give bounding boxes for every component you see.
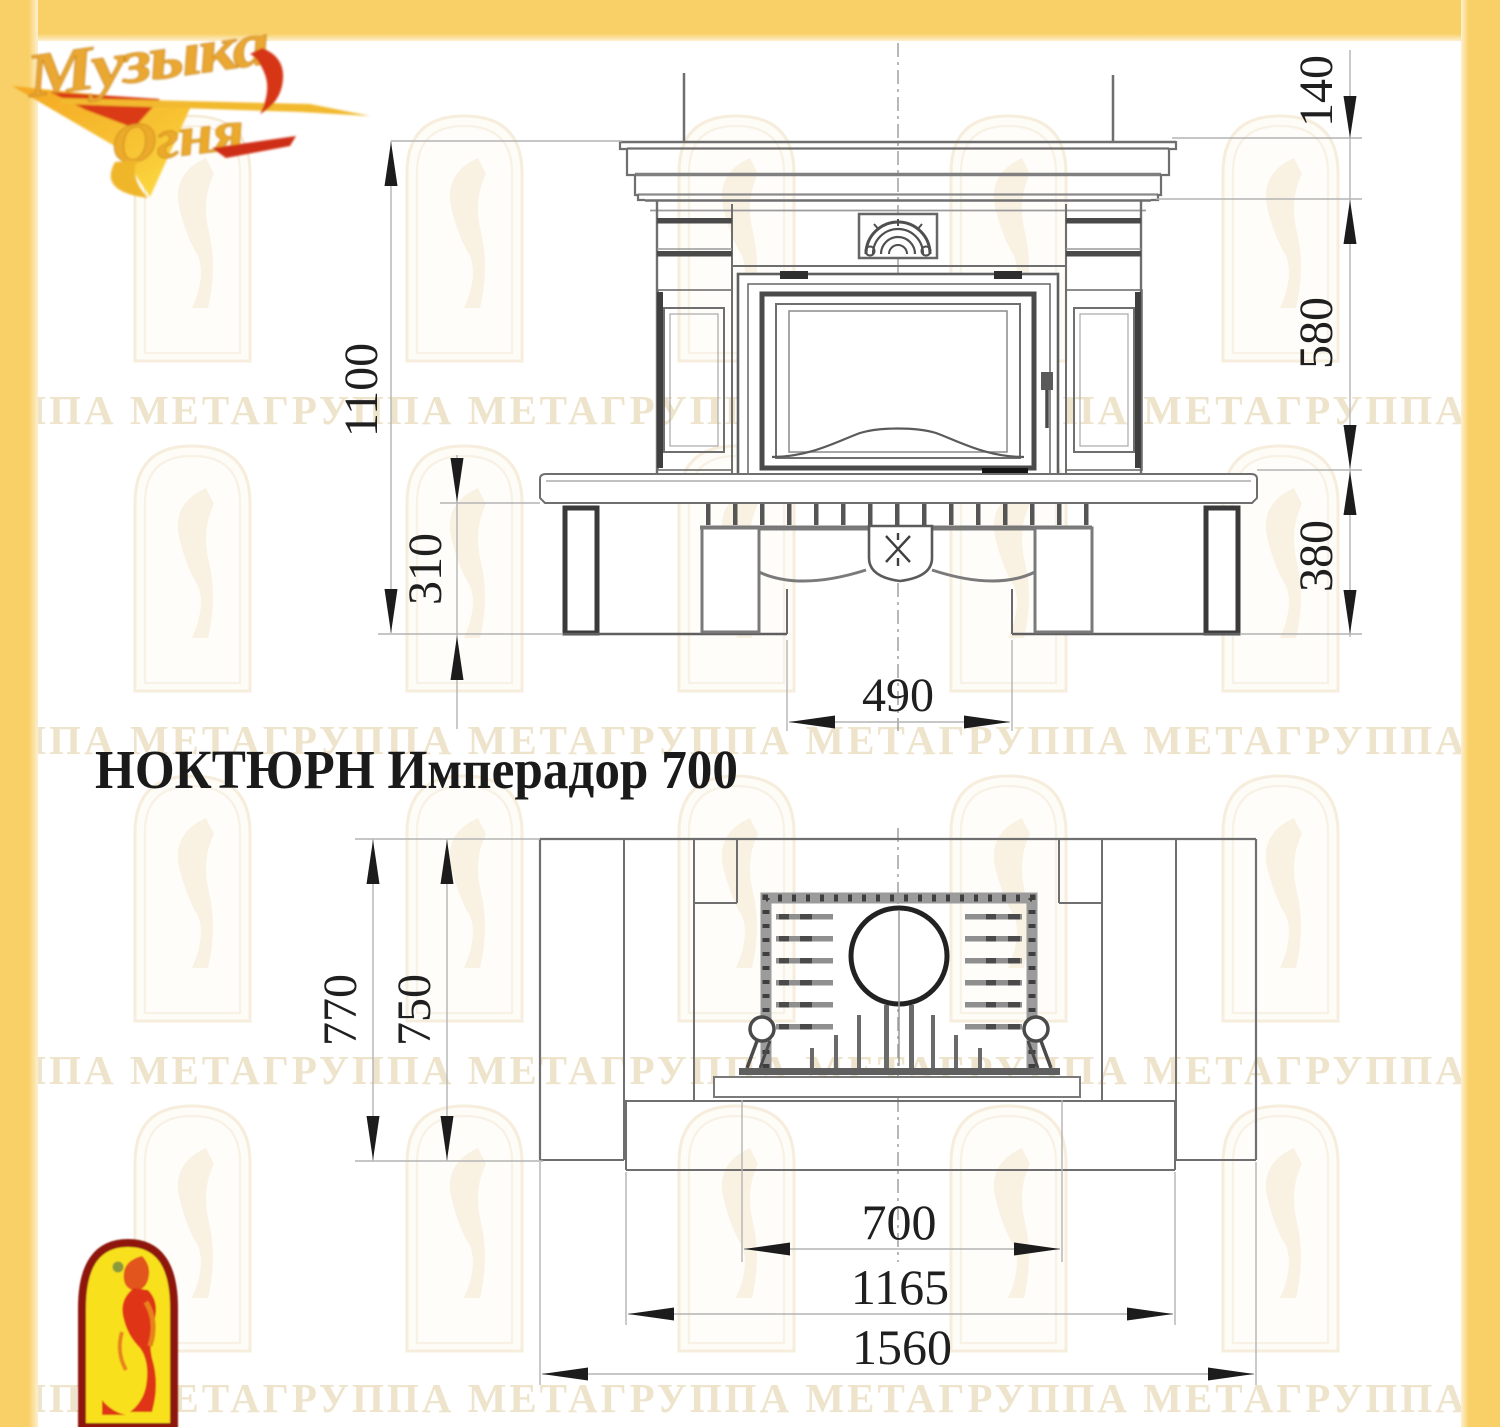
svg-text:140: 140 [1290, 55, 1343, 127]
svg-text:580: 580 [1290, 297, 1343, 369]
svg-text:380: 380 [1290, 520, 1343, 592]
svg-text:490: 490 [862, 669, 934, 722]
svg-text:770: 770 [314, 974, 367, 1046]
svg-text:1100: 1100 [335, 343, 388, 437]
svg-text:НОКТЮРН Имперадор 700: НОКТЮРН Имперадор 700 [95, 739, 738, 800]
svg-text:1560: 1560 [852, 1319, 952, 1375]
svg-text:1165: 1165 [851, 1259, 949, 1315]
svg-text:ГРУППА МЕТАГРУППА МЕТАГРУППА М: ГРУППА МЕТАГРУППА МЕТАГРУППА МЕТАГРУППА … [0, 1375, 1500, 1421]
svg-text:750: 750 [388, 974, 441, 1046]
svg-text:700: 700 [862, 1194, 937, 1250]
svg-text:310: 310 [399, 533, 452, 605]
